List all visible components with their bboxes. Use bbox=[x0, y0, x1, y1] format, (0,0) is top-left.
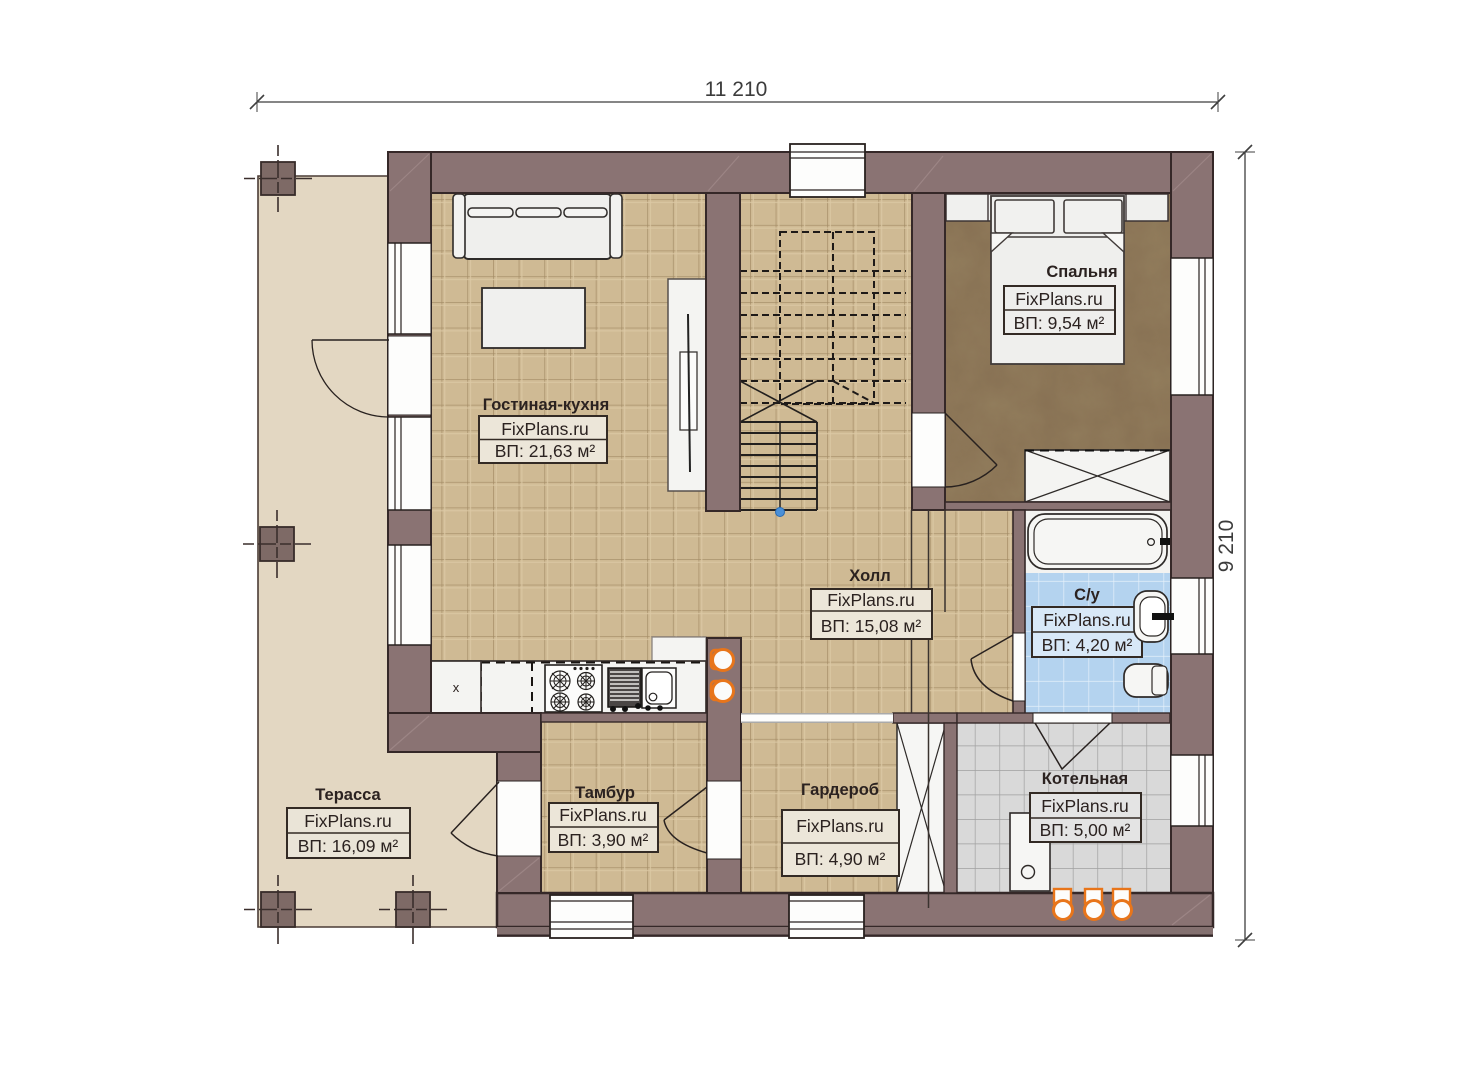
svg-text:ВП: 16,09 м²: ВП: 16,09 м² bbox=[298, 836, 399, 856]
svg-text:ВП: 21,63 м²: ВП: 21,63 м² bbox=[495, 441, 596, 461]
svg-text:FixPlans.ru: FixPlans.ru bbox=[796, 816, 884, 836]
svg-text:Спальня: Спальня bbox=[1046, 263, 1117, 281]
svg-text:Терасса: Терасса bbox=[315, 786, 381, 804]
svg-text:Тамбур: Тамбур bbox=[575, 784, 635, 802]
svg-text:Котельная: Котельная bbox=[1042, 770, 1128, 788]
svg-text:Гостиная-кухня: Гостиная-кухня bbox=[483, 396, 609, 414]
svg-text:FixPlans.ru: FixPlans.ru bbox=[1043, 610, 1131, 630]
svg-text:ВП: 9,54 м²: ВП: 9,54 м² bbox=[1014, 313, 1105, 333]
svg-text:11 210: 11 210 bbox=[705, 78, 768, 101]
svg-text:FixPlans.ru: FixPlans.ru bbox=[501, 419, 589, 439]
svg-text:FixPlans.ru: FixPlans.ru bbox=[304, 811, 392, 831]
svg-text:FixPlans.ru: FixPlans.ru bbox=[1041, 796, 1129, 816]
svg-text:ВП: 3,90 м²: ВП: 3,90 м² bbox=[558, 830, 649, 850]
svg-text:ВП: 5,00 м²: ВП: 5,00 м² bbox=[1040, 820, 1131, 840]
svg-text:FixPlans.ru: FixPlans.ru bbox=[559, 805, 647, 825]
svg-text:x: x bbox=[453, 680, 460, 695]
svg-text:Холл: Холл bbox=[849, 567, 890, 585]
svg-text:ВП: 4,20 м²: ВП: 4,20 м² bbox=[1042, 635, 1133, 655]
svg-text:С/у: С/у bbox=[1074, 586, 1101, 604]
svg-text:9 210: 9 210 bbox=[1215, 520, 1238, 573]
svg-text:Гардероб: Гардероб bbox=[801, 781, 879, 799]
svg-text:FixPlans.ru: FixPlans.ru bbox=[1015, 289, 1103, 309]
svg-text:ВП: 4,90 м²: ВП: 4,90 м² bbox=[795, 849, 886, 869]
svg-text:FixPlans.ru: FixPlans.ru bbox=[827, 590, 915, 610]
svg-text:ВП: 15,08 м²: ВП: 15,08 м² bbox=[821, 616, 922, 636]
